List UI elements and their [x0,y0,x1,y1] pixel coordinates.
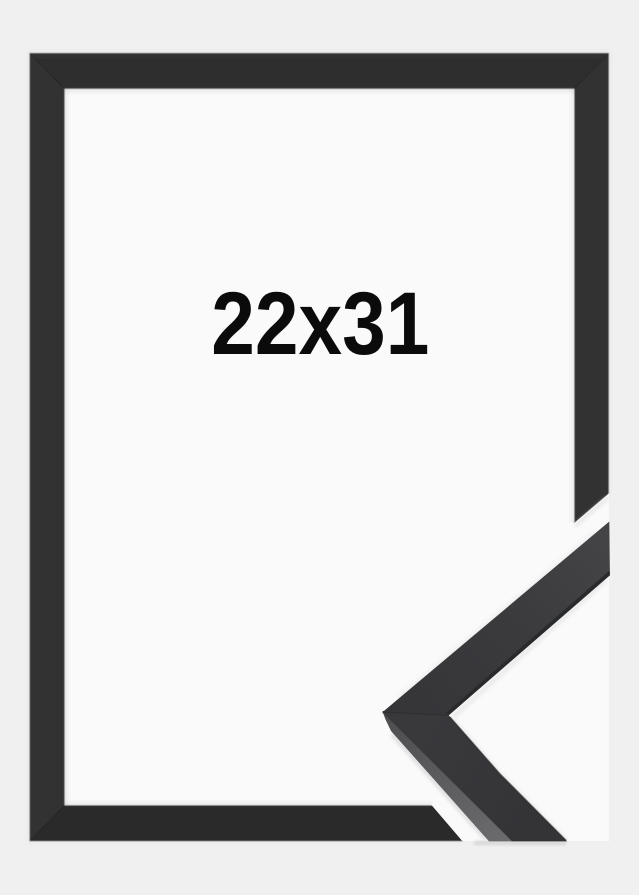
svg-text:22x31: 22x31 [211,273,429,373]
